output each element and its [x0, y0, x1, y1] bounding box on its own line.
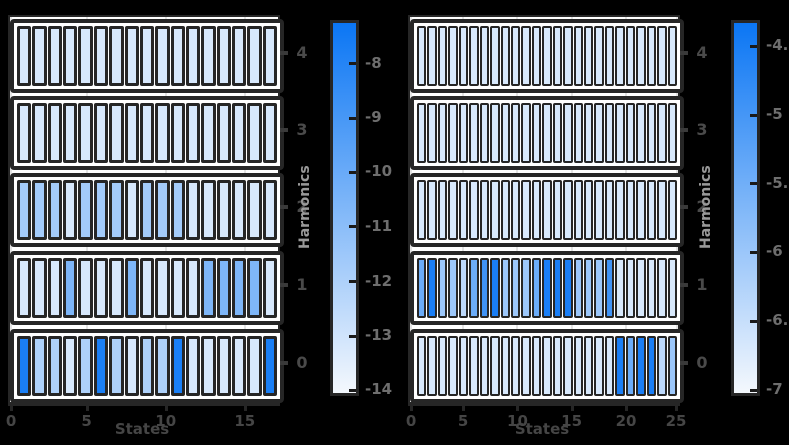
state-bar: [140, 103, 154, 163]
state-bar: [501, 336, 510, 396]
state-bar: [94, 103, 108, 163]
state-bar: [532, 103, 541, 163]
colorbar-tick-label: -13: [365, 326, 405, 344]
colorbar-tick-label: -6: [766, 242, 789, 260]
y-tick-mark: [680, 361, 688, 365]
state-bar: [668, 103, 677, 163]
x-tick-mark: [10, 406, 13, 411]
state-bar: [427, 103, 436, 163]
left-plot-area: 43210051015: [8, 15, 280, 406]
state-bar: [469, 26, 478, 86]
x-tick-mark: [571, 406, 574, 411]
state-bar: [438, 336, 447, 396]
state-bar: [563, 336, 572, 396]
state-bar: [171, 258, 185, 318]
state-bar: [563, 258, 572, 318]
state-bar: [78, 258, 92, 318]
state-bar: [615, 26, 624, 86]
colorbar-tick-mark: [349, 335, 356, 338]
state-bar: [563, 180, 572, 240]
state-bar: [657, 336, 666, 396]
right-plot-area: 432100510152025: [408, 15, 680, 406]
state-bar: [438, 26, 447, 86]
state-bar: [427, 258, 436, 318]
harmonic-row-1: [10, 251, 284, 325]
state-bar: [532, 26, 541, 86]
state-bar: [417, 180, 426, 240]
colorbar-tick-label: -6.5: [766, 311, 789, 329]
state-bar: [459, 103, 468, 163]
state-bar: [647, 258, 656, 318]
state-bar: [263, 180, 277, 240]
state-bar: [17, 180, 31, 240]
state-bar: [626, 258, 635, 318]
colorbar-tick-label: -14: [365, 380, 405, 398]
colorbar-tick-mark: [750, 251, 757, 254]
state-bar: [647, 26, 656, 86]
state-bar: [247, 336, 261, 396]
state-bar: [490, 258, 499, 318]
state-bar: [63, 26, 77, 86]
state-bar: [63, 103, 77, 163]
colorbar-tick-mark: [750, 182, 757, 185]
state-bar: [668, 180, 677, 240]
state-bar: [636, 258, 645, 318]
colorbar-tick-label: -9: [365, 108, 405, 126]
x-tick-mark: [410, 406, 413, 411]
state-bar: [469, 258, 478, 318]
state-bar: [438, 103, 447, 163]
state-bar: [186, 336, 200, 396]
state-bar: [480, 103, 489, 163]
state-bar: [542, 180, 551, 240]
left-yaxis-label: Harmonics: [296, 15, 314, 400]
colorbar-tick-label: -4.5: [766, 36, 789, 54]
state-bar: [155, 26, 169, 86]
colorbar-tick-label: -11: [365, 217, 405, 235]
state-bar: [125, 180, 139, 240]
y-tick-mark: [680, 283, 688, 287]
colorbar-tick-label: -7: [766, 380, 789, 398]
state-bar: [109, 258, 123, 318]
state-bar: [140, 258, 154, 318]
state-bar: [48, 336, 62, 396]
colorbar-tick-mark: [750, 114, 757, 117]
x-tick-mark: [675, 406, 678, 411]
state-bar: [171, 26, 185, 86]
x-tick-mark: [462, 406, 465, 411]
state-bar: [584, 336, 593, 396]
harmonic-row-2: [10, 173, 284, 247]
state-bar: [448, 336, 457, 396]
state-bar: [94, 26, 108, 86]
state-bar: [201, 336, 215, 396]
state-bar: [109, 26, 123, 86]
state-bar: [668, 258, 677, 318]
state-bar: [94, 258, 108, 318]
state-bar: [78, 103, 92, 163]
state-bar: [553, 26, 562, 86]
state-bar: [201, 26, 215, 86]
state-bar: [501, 26, 510, 86]
state-bar: [448, 103, 457, 163]
state-bar: [521, 26, 530, 86]
state-bar: [186, 26, 200, 86]
state-bar: [48, 26, 62, 86]
colorbar-tick-mark: [349, 62, 356, 65]
x-tick-mark: [86, 406, 89, 411]
state-bar: [263, 26, 277, 86]
state-bar: [32, 26, 46, 86]
harmonic-row-0: [410, 329, 684, 403]
y-tick-mark: [280, 283, 288, 287]
colorbar-tick-mark: [349, 389, 356, 392]
state-bar: [511, 336, 520, 396]
left-colorbar: -8-9-10-11-12-13-14: [330, 20, 359, 396]
y-tick-mark: [280, 128, 288, 132]
state-bar: [532, 258, 541, 318]
colorbar-tick-mark: [349, 117, 356, 120]
state-bar: [186, 180, 200, 240]
state-bar: [217, 103, 231, 163]
state-bar: [469, 336, 478, 396]
state-bar: [605, 26, 614, 86]
state-bar: [459, 336, 468, 396]
harmonic-row-3: [10, 96, 284, 170]
colorbar-tick-mark: [750, 45, 757, 48]
state-bar: [217, 336, 231, 396]
state-bar: [94, 180, 108, 240]
state-bar: [636, 26, 645, 86]
state-bar: [48, 180, 62, 240]
state-bar: [490, 336, 499, 396]
state-bar: [232, 258, 246, 318]
state-bar: [480, 26, 489, 86]
state-bar: [574, 258, 583, 318]
state-bar: [263, 103, 277, 163]
state-bar: [615, 103, 624, 163]
state-bar: [217, 180, 231, 240]
harmonic-row-1: [410, 251, 684, 325]
state-bar: [247, 258, 261, 318]
state-bar: [532, 336, 541, 396]
state-bar: [263, 258, 277, 318]
state-bar: [615, 258, 624, 318]
state-bar: [32, 103, 46, 163]
state-bar: [417, 26, 426, 86]
state-bar: [459, 26, 468, 86]
state-bar: [63, 180, 77, 240]
state-bar: [417, 103, 426, 163]
state-bar: [427, 180, 436, 240]
state-bar: [155, 336, 169, 396]
state-bar: [626, 336, 635, 396]
state-bar: [448, 180, 457, 240]
colorbar-tick-label: -5.5: [766, 174, 789, 192]
colorbar-tick-mark: [349, 280, 356, 283]
state-bar: [63, 336, 77, 396]
state-bar: [201, 180, 215, 240]
y-tick-mark: [680, 128, 688, 132]
state-bar: [542, 336, 551, 396]
x-tick-mark: [625, 406, 628, 411]
y-tick-mark: [280, 51, 288, 55]
x-tick-mark: [516, 406, 519, 411]
state-bar: [553, 180, 562, 240]
state-bar: [490, 180, 499, 240]
colorbar-tick-label: -10: [365, 162, 405, 180]
state-bar: [553, 258, 562, 318]
state-bar: [438, 258, 447, 318]
state-bar: [480, 180, 489, 240]
state-bar: [511, 258, 520, 318]
state-bar: [563, 26, 572, 86]
left-xaxis-label: States: [8, 420, 276, 438]
colorbar-tick-label: -8: [365, 54, 405, 72]
state-bar: [171, 336, 185, 396]
state-bar: [615, 180, 624, 240]
x-tick-mark: [244, 406, 247, 411]
state-bar: [155, 180, 169, 240]
state-bar: [584, 103, 593, 163]
state-bar: [125, 26, 139, 86]
state-bar: [574, 26, 583, 86]
state-bar: [32, 180, 46, 240]
colorbar-tick-mark: [750, 389, 757, 392]
state-bar: [78, 180, 92, 240]
state-bar: [232, 103, 246, 163]
state-bar: [109, 180, 123, 240]
state-bar: [626, 26, 635, 86]
state-bar: [542, 258, 551, 318]
state-bar: [594, 258, 603, 318]
state-bar: [668, 336, 677, 396]
state-bar: [553, 336, 562, 396]
state-bar: [48, 103, 62, 163]
x-tick-mark: [165, 406, 168, 411]
state-bar: [438, 180, 447, 240]
harmonic-row-4: [410, 19, 684, 93]
harmonic-row-4: [10, 19, 284, 93]
state-bar: [109, 336, 123, 396]
right-yaxis-label: Harmonics: [697, 15, 715, 400]
state-bar: [171, 103, 185, 163]
state-bar: [605, 258, 614, 318]
colorbar-tick-mark: [349, 225, 356, 228]
figure: 43210051015 States Harmonics -8-9-10-11-…: [0, 0, 789, 445]
state-bar: [584, 180, 593, 240]
state-bar: [217, 26, 231, 86]
colorbar-tick-mark: [750, 320, 757, 323]
state-bar: [647, 180, 656, 240]
state-bar: [490, 103, 499, 163]
state-bar: [532, 180, 541, 240]
colorbar-tick-mark: [349, 171, 356, 174]
state-bar: [155, 103, 169, 163]
state-bar: [501, 180, 510, 240]
state-bar: [490, 26, 499, 86]
state-bar: [94, 336, 108, 396]
state-bar: [615, 336, 624, 396]
right-xaxis-label: States: [408, 420, 676, 438]
state-bar: [469, 103, 478, 163]
y-tick-mark: [280, 205, 288, 209]
colorbar-tick-label: -5: [766, 105, 789, 123]
state-bar: [501, 103, 510, 163]
state-bar: [232, 336, 246, 396]
state-bar: [636, 103, 645, 163]
state-bar: [125, 103, 139, 163]
state-bar: [448, 26, 457, 86]
y-tick-mark: [280, 361, 288, 365]
state-bar: [511, 103, 520, 163]
state-bar: [469, 180, 478, 240]
state-bar: [542, 26, 551, 86]
state-bar: [48, 258, 62, 318]
colorbar-tick-label: -12: [365, 272, 405, 290]
state-bar: [201, 258, 215, 318]
state-bar: [605, 336, 614, 396]
state-bar: [636, 336, 645, 396]
state-bar: [109, 103, 123, 163]
state-bar: [459, 258, 468, 318]
state-bar: [171, 180, 185, 240]
state-bar: [78, 336, 92, 396]
state-bar: [17, 103, 31, 163]
state-bar: [668, 26, 677, 86]
harmonic-row-3: [410, 96, 684, 170]
state-bar: [17, 336, 31, 396]
state-bar: [521, 258, 530, 318]
state-bar: [186, 103, 200, 163]
state-bar: [63, 258, 77, 318]
state-bar: [17, 26, 31, 86]
state-bar: [647, 103, 656, 163]
state-bar: [636, 180, 645, 240]
state-bar: [574, 103, 583, 163]
state-bar: [563, 103, 572, 163]
y-tick-mark: [680, 205, 688, 209]
state-bar: [657, 26, 666, 86]
state-bar: [217, 258, 231, 318]
state-bar: [594, 180, 603, 240]
state-bar: [17, 258, 31, 318]
state-bar: [553, 103, 562, 163]
state-bar: [574, 180, 583, 240]
state-bar: [542, 103, 551, 163]
state-bar: [511, 180, 520, 240]
state-bar: [480, 258, 489, 318]
state-bar: [511, 26, 520, 86]
state-bar: [427, 336, 436, 396]
state-bar: [594, 103, 603, 163]
state-bar: [247, 103, 261, 163]
state-bar: [594, 336, 603, 396]
state-bar: [480, 336, 489, 396]
state-bar: [32, 258, 46, 318]
state-bar: [521, 103, 530, 163]
state-bar: [417, 336, 426, 396]
state-bar: [247, 180, 261, 240]
state-bar: [232, 180, 246, 240]
state-bar: [201, 103, 215, 163]
state-bar: [140, 26, 154, 86]
state-bar: [584, 258, 593, 318]
harmonic-row-2: [410, 173, 684, 247]
state-bar: [594, 26, 603, 86]
state-bar: [626, 180, 635, 240]
state-bar: [140, 180, 154, 240]
y-tick-mark: [680, 51, 688, 55]
state-bar: [647, 336, 656, 396]
state-bar: [140, 336, 154, 396]
state-bar: [263, 336, 277, 396]
harmonic-row-0: [10, 329, 284, 403]
state-bar: [501, 258, 510, 318]
state-bar: [459, 180, 468, 240]
state-bar: [125, 258, 139, 318]
state-bar: [657, 258, 666, 318]
state-bar: [78, 26, 92, 86]
state-bar: [605, 180, 614, 240]
state-bar: [232, 26, 246, 86]
right-colorbar: -4.5-5-5.5-6-6.5-7: [731, 20, 760, 396]
state-bar: [584, 26, 593, 86]
state-bar: [247, 26, 261, 86]
state-bar: [186, 258, 200, 318]
state-bar: [626, 103, 635, 163]
state-bar: [427, 26, 436, 86]
state-bar: [521, 180, 530, 240]
state-bar: [574, 336, 583, 396]
state-bar: [448, 258, 457, 318]
state-bar: [657, 103, 666, 163]
state-bar: [605, 103, 614, 163]
state-bar: [155, 258, 169, 318]
state-bar: [32, 336, 46, 396]
state-bar: [125, 336, 139, 396]
state-bar: [657, 180, 666, 240]
state-bar: [521, 336, 530, 396]
state-bar: [417, 258, 426, 318]
